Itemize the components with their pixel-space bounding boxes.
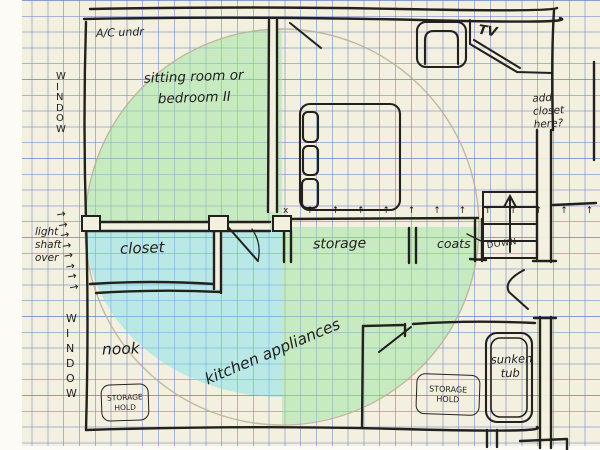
coats-label: coats [437,237,471,251]
window-label-bottom: W I N D O W [66,311,78,401]
wall-patch-right-low [540,318,551,446]
door-arc-below-stairs [508,270,528,309]
wall-top-inner [84,18,562,22]
wall-patch-band [88,222,270,231]
storage-hold-left-box: STORAGE HOLD [100,383,149,422]
bed [300,104,400,210]
wall-top-outer [90,8,557,11]
ac-note: A/C undr [96,26,144,40]
add-closet-note: add closet here? [532,91,565,132]
pillow-1 [303,112,318,142]
floorplan-drawing [0,0,600,450]
wall-hook-rail [283,218,478,219]
post-closet-door [209,216,228,231]
pillow-3 [302,179,318,208]
fill-quadrant-bottom-left [85,227,282,397]
tv-label: TV [477,24,498,42]
fill-quadrant-top-left [85,29,282,227]
closet-label: closet [120,239,165,258]
wall-bottom [86,427,538,431]
sunken-tub-label: sunken tub [491,351,530,380]
post-divider [273,216,291,231]
wall-patch-right-mid [537,130,551,260]
window-label-top: W I N D O W [56,72,67,135]
storage-hold-right-box: STORAGE HOLD [415,373,480,416]
post-left [82,216,100,231]
wall-right-tick [553,203,596,205]
wall-bath-left [362,326,363,428]
door-leaf-bedroom [290,23,321,48]
hook-row-marks: x ↑ ↑ ↑ ↑ ↑ ↑ ↑ ↑ ↑ ↑ ↑ ↑ ↑ [283,206,600,216]
storage-label: storage [313,236,366,253]
graph-paper-sheet: A/C undr W I N D O W W I N D O W sitting… [0,0,600,450]
sitting-room-label: sitting room or bedroom II [143,65,244,110]
wall-bottom-ticks [487,430,497,447]
light-shaft-note: light shaft over [35,226,61,265]
armchair-arch [425,31,458,64]
pillow-2 [303,146,318,175]
nook-label: nook [102,340,140,359]
